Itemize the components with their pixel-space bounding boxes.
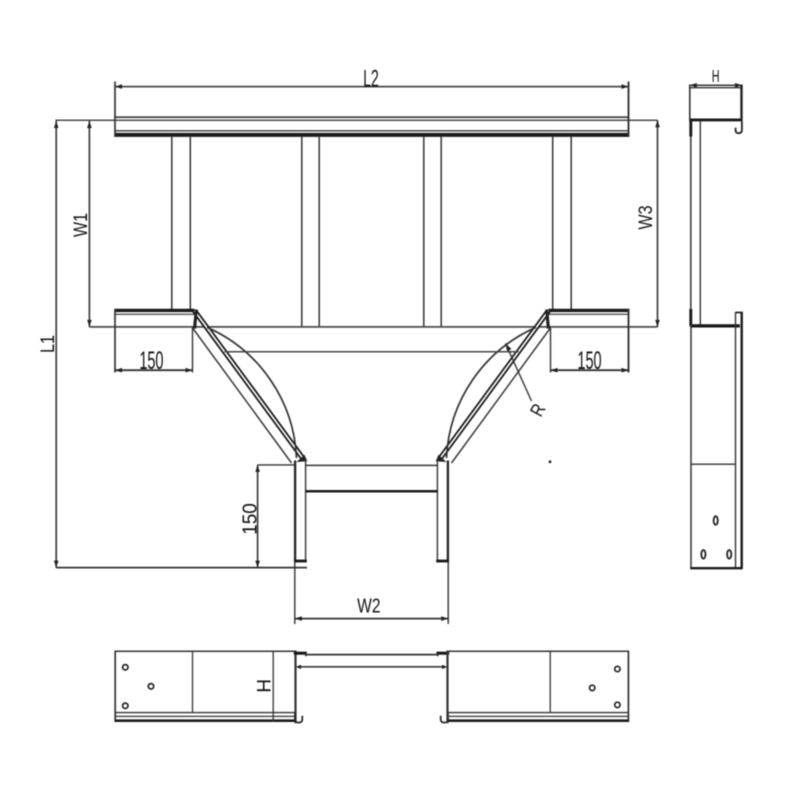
- svg-text:L1: L1: [37, 335, 59, 353]
- svg-text:150: 150: [577, 348, 601, 375]
- svg-text:W2: W2: [357, 595, 380, 617]
- svg-text:H: H: [712, 67, 720, 86]
- svg-text:R: R: [525, 400, 550, 420]
- svg-text:L2: L2: [363, 66, 378, 93]
- svg-text:150: 150: [139, 348, 163, 375]
- svg-text:W3: W3: [635, 205, 657, 229]
- svg-text:150: 150: [239, 503, 262, 535]
- svg-text:W1: W1: [70, 213, 92, 237]
- svg-text:H: H: [255, 679, 276, 693]
